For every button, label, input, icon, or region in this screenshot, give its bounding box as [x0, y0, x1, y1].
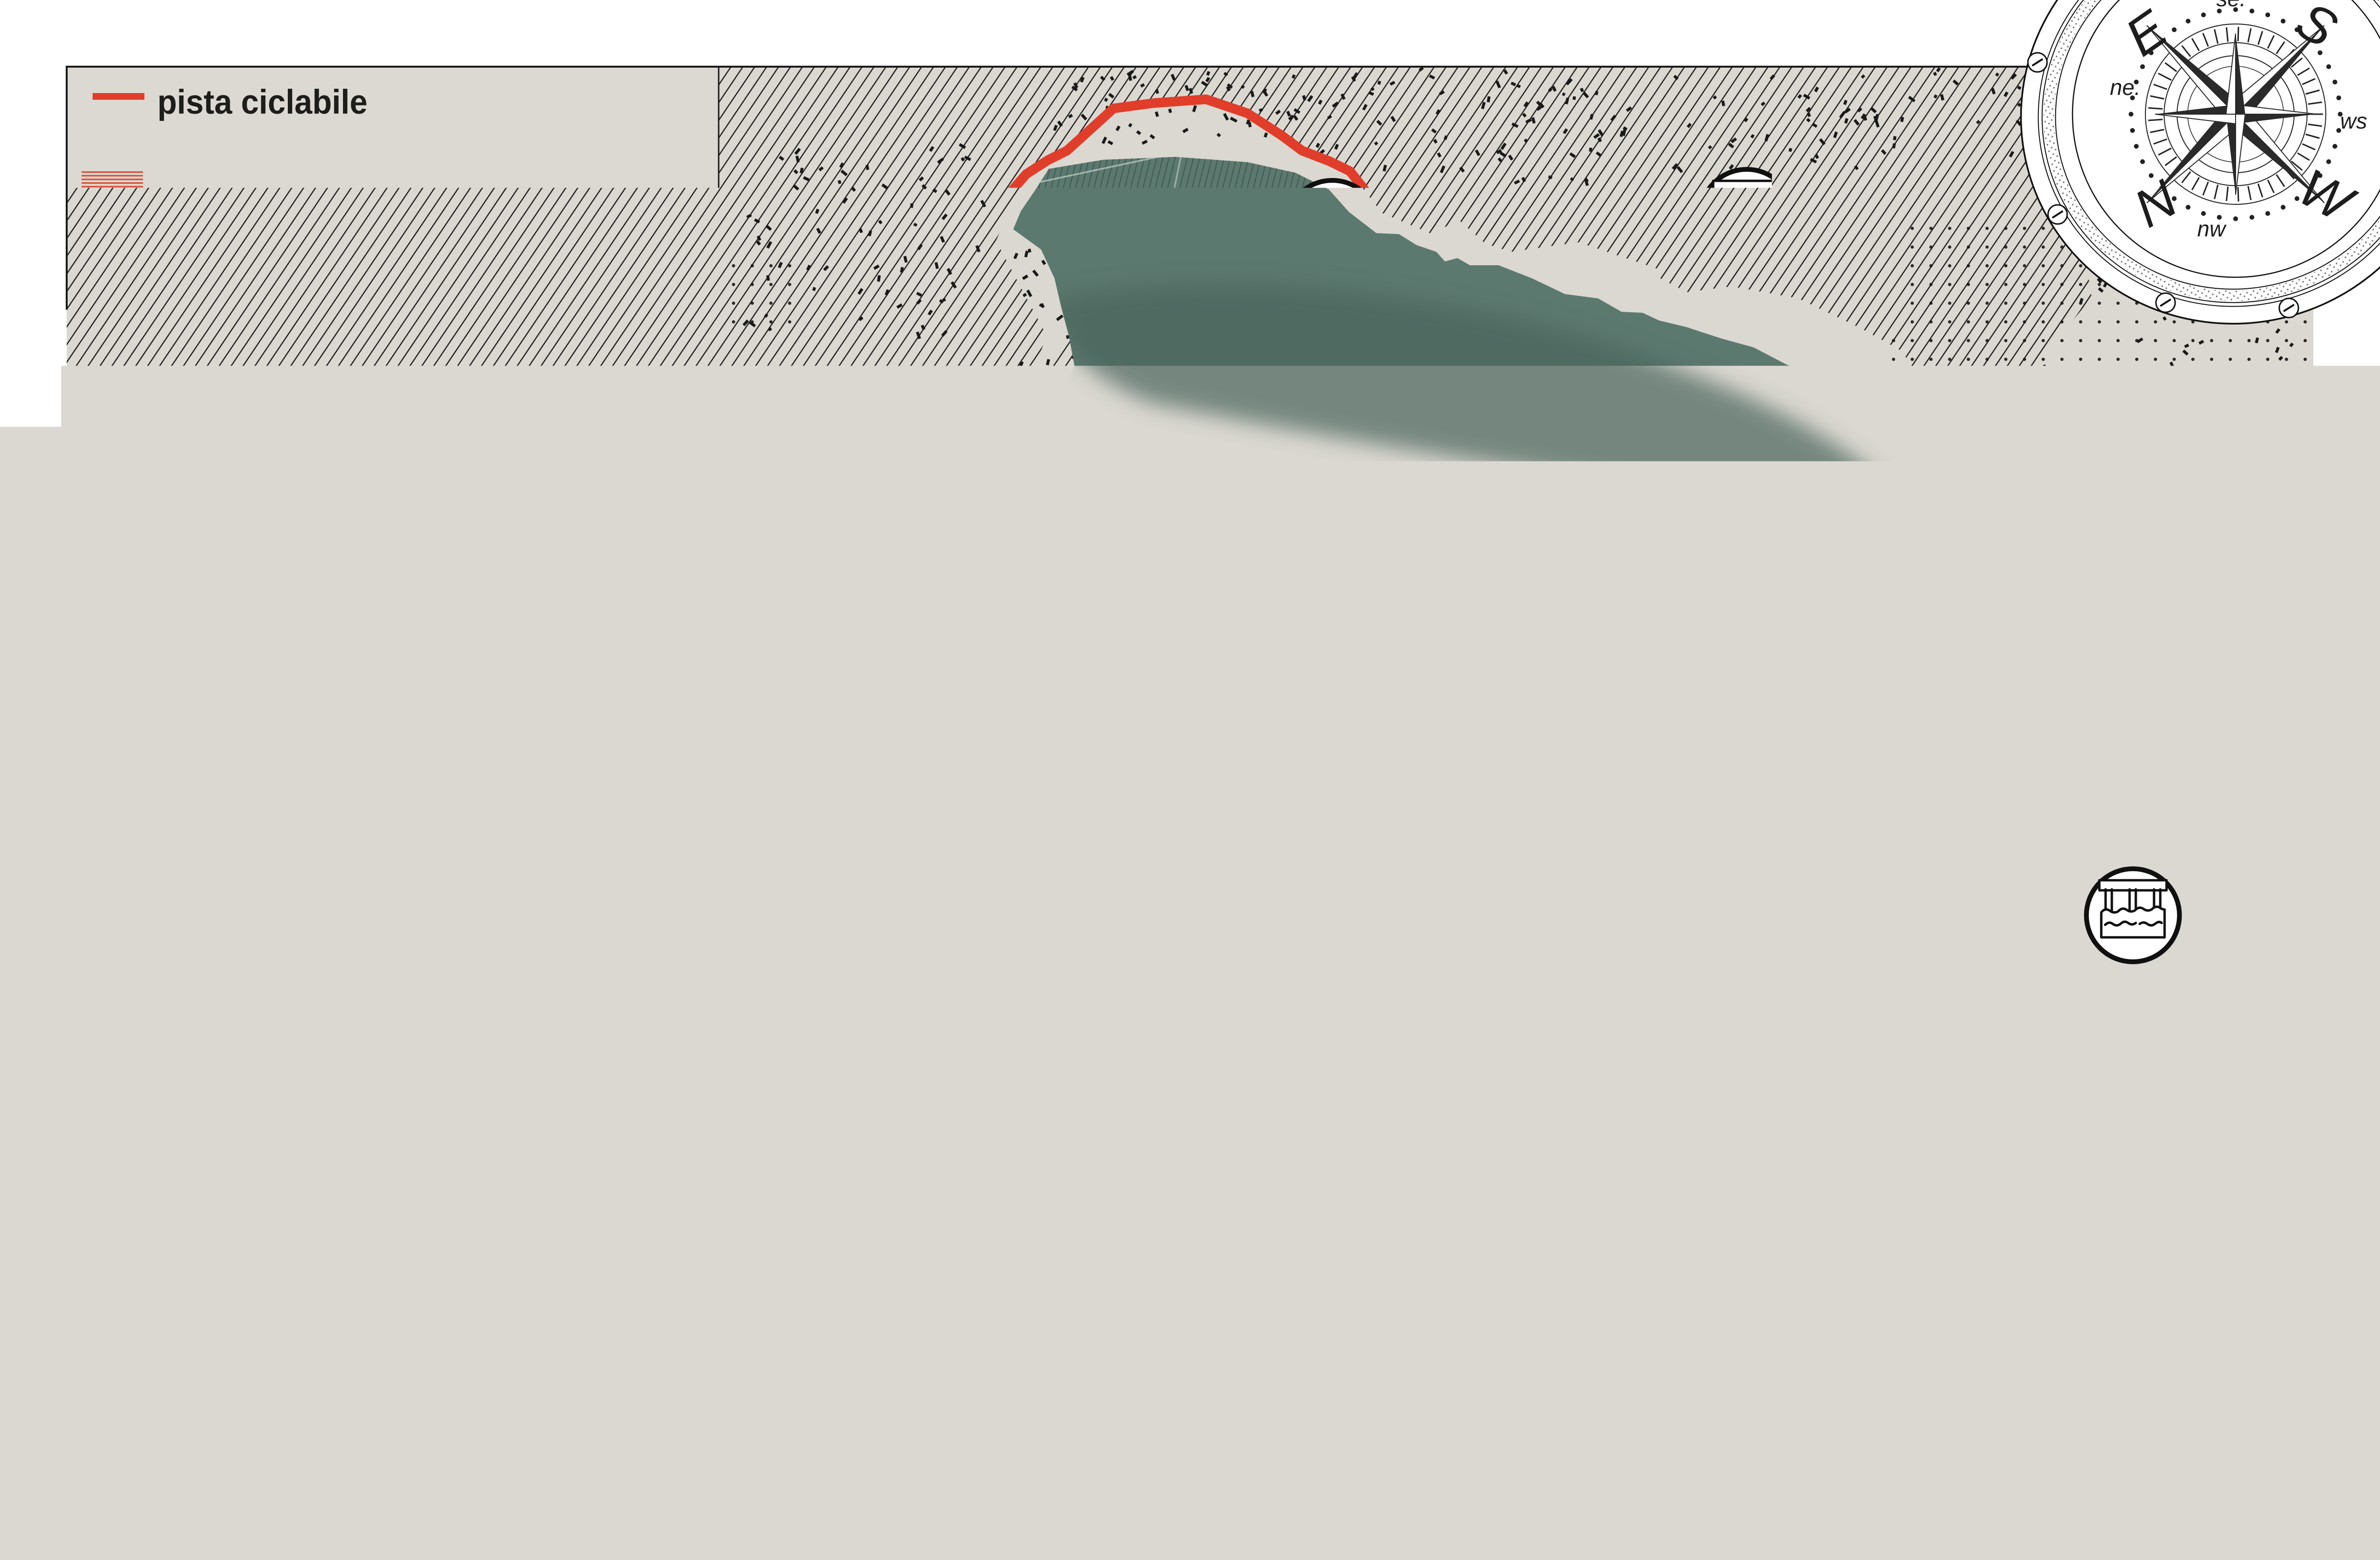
svg-text:se.: se. [2216, 0, 2246, 11]
svg-text:nw: nw [2197, 216, 2227, 241]
svg-text:ne.: ne. [2110, 75, 2141, 100]
svg-text:pista ciclabile: pista ciclabile [157, 83, 367, 121]
svg-text:darsena: darsena [157, 375, 279, 413]
svg-text:pontile dismesso: pontile dismesso [157, 273, 418, 311]
svg-text:ws: ws [2340, 108, 2367, 133]
svg-text:ripristino della Phragmites au: ripristino della Phragmites australis [157, 184, 716, 222]
